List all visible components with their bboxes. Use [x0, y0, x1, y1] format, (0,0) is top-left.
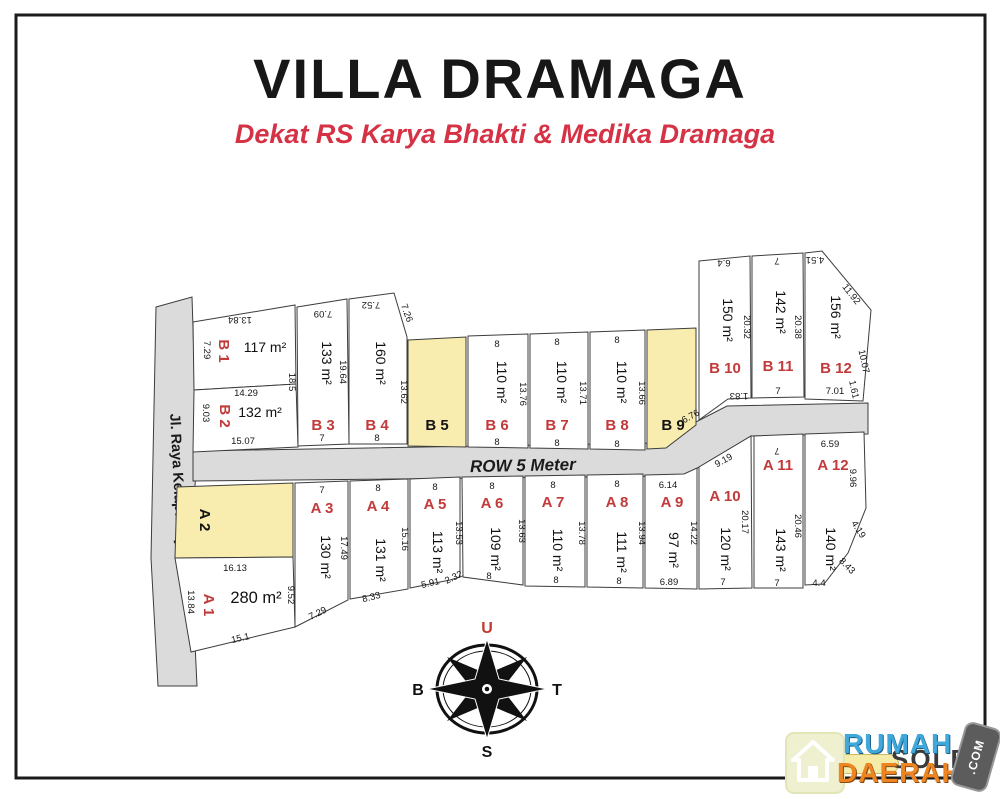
- site-logo: SOLD RUMAH DAERAH .COM: [781, 720, 996, 798]
- plot-b4-area: 160 m²: [373, 341, 389, 385]
- dim-b10-right: 20.32: [741, 315, 752, 339]
- dim-b1-left: 7.29: [201, 341, 212, 360]
- plot-b11-label: B 11: [763, 358, 794, 375]
- dim-a11-right: 20.46: [792, 514, 803, 538]
- dim-a12-right: 9.96: [847, 469, 858, 488]
- compass-north-label: U: [481, 620, 493, 637]
- plot-a9-label: A 9: [661, 494, 684, 511]
- dim-b2-left: 9.03: [200, 404, 211, 423]
- dim-b6-right: 13.76: [517, 382, 528, 406]
- dim-a11-bottom: 7: [774, 578, 779, 589]
- plot-a8-area: 111 m²: [614, 531, 630, 573]
- dim-b7-top: 8: [554, 337, 559, 348]
- plot-a4-label: A 4: [367, 498, 390, 515]
- dim-b3-top: 7.09: [314, 308, 333, 319]
- plot-b1-label: B 1: [215, 339, 232, 362]
- dim-b4-top: 7.52: [362, 299, 381, 310]
- dim-a6-bottom: 8: [486, 571, 491, 582]
- dim-b10-top: 6.4: [717, 257, 730, 268]
- dim-a9-top: 6.14: [659, 480, 678, 491]
- dim-a11-top: 7: [774, 445, 779, 456]
- dim-a7-right: 13.78: [576, 521, 587, 545]
- logo-com-label: .COM: [964, 738, 987, 776]
- logo-name-bottom: DAERAH: [837, 757, 963, 789]
- plot-b6-area: 110 m²: [494, 361, 510, 404]
- dim-a8-right: 13.94: [636, 521, 647, 545]
- dim-a1-left: 13.84: [185, 590, 196, 614]
- dim-b3-right: 19.64: [337, 360, 348, 384]
- plot-a7-area: 110 m²: [550, 529, 566, 572]
- compass-east-label: T: [552, 682, 562, 699]
- house-icon: [785, 732, 845, 794]
- dim-a9-bottom: 6.89: [660, 577, 679, 588]
- dim-a9-right: 14.22: [688, 521, 699, 545]
- plot-b8-label: B 8: [605, 417, 628, 434]
- plot-b11-area: 142 m²: [773, 290, 789, 334]
- plot-a5-area: 113 m²: [430, 531, 446, 574]
- dim-b7-right: 13.71: [577, 381, 588, 405]
- logo-name-top: RUMAH: [843, 728, 952, 760]
- page-title: VILLA DRAMAGA: [253, 47, 747, 110]
- plot-a4-area: 131 m²: [373, 538, 389, 582]
- dim-a3-top: 7: [319, 485, 324, 496]
- dim-b8-top: 8: [614, 335, 619, 346]
- plot-b7-label: B 7: [545, 417, 568, 434]
- dim-b11-top: 7: [774, 255, 779, 266]
- dim-a8-bottom: 8: [616, 576, 621, 587]
- plot-a10-label: A 10: [709, 488, 740, 505]
- plot-b3-area: 133 m²: [319, 341, 335, 385]
- dim-b8-bottom: 8: [614, 439, 619, 450]
- site-plan-canvas: VILLA DRAMAGA Dekat RS Karya Bhakti & Me…: [0, 0, 1000, 799]
- plot-b1-area: 117 m²: [244, 339, 287, 355]
- dim-a3-right: 17.49: [338, 536, 349, 560]
- dim-b1-bottom: 14.29: [234, 388, 258, 399]
- plot-a3-area: 130 m²: [318, 535, 334, 579]
- plot-a12-area: 140 m²: [823, 527, 839, 571]
- dim-b1-top: 13.84: [228, 314, 252, 325]
- dim-b6-bottom: 8: [494, 437, 499, 448]
- plot-a10-area: 120 m²: [718, 527, 734, 571]
- dim-b11-right: 20.38: [792, 315, 803, 339]
- plot-a9-area: 97 m²: [666, 532, 682, 568]
- plot-a12-label: A 12: [817, 457, 848, 474]
- plot-b12-area: 156 m²: [828, 295, 844, 339]
- dim-a12-bottom: 4.4: [812, 578, 825, 589]
- dim-a6-right: 13.63: [516, 519, 527, 543]
- road-label: ROW 5 Meter: [470, 455, 578, 476]
- plot-a11-area: 143 m²: [773, 528, 789, 572]
- plot-b12-label: B 12: [820, 360, 852, 377]
- plot-a6-area: 109 m²: [488, 527, 504, 571]
- plot-b7-area: 110 m²: [554, 361, 570, 404]
- plot-b4-label: B 4: [365, 417, 389, 434]
- dim-b1-right: 18.5: [286, 373, 297, 392]
- plot-b3-label: B 3: [311, 417, 334, 434]
- dim-b6-top: 8: [494, 339, 499, 350]
- plot-a6-label: A 6: [481, 495, 504, 512]
- dim-a6-top: 8: [489, 481, 494, 492]
- page-subtitle: Dekat RS Karya Bhakti & Medika Dramaga: [235, 119, 775, 149]
- dim-b11-bottom: 7: [775, 386, 780, 397]
- dim-b12-top: 4.51: [806, 254, 825, 265]
- dim-a1-top: 16.13: [223, 563, 247, 574]
- dim-a12-top: 6.59: [821, 439, 840, 450]
- plot-a2: [175, 483, 293, 558]
- dim-b10-bottom: 1.83: [730, 390, 749, 401]
- plot-a1-label: A 1: [200, 594, 217, 617]
- dim-a5-right: 13.53: [453, 521, 464, 545]
- dim-b12-bottom: 7.01: [826, 386, 845, 397]
- dim-b4-right: 13.62: [398, 380, 409, 404]
- dim-b4-bottom: 8: [374, 433, 379, 444]
- dim-b7-bottom: 8: [554, 438, 559, 449]
- dim-a10-right: 20.17: [739, 510, 750, 534]
- dim-a7-bottom: 8: [553, 575, 558, 586]
- plot-a5-label: A 5: [424, 496, 447, 513]
- dim-b8-right: 13.66: [636, 381, 647, 405]
- plot-b10-label: B 10: [709, 360, 741, 377]
- dim-a10-bottom: 7: [720, 577, 725, 588]
- plot-a11-label: A 11: [763, 457, 793, 474]
- plot-b8-area: 110 m²: [614, 361, 630, 404]
- plot-b2-label: B 2: [216, 404, 233, 427]
- plot-a7-label: A 7: [542, 494, 565, 511]
- site-plan-flyer: VILLA DRAMAGA Dekat RS Karya Bhakti & Me…: [0, 0, 1000, 799]
- compass-south-label: S: [482, 744, 493, 761]
- dim-a5-top: 8: [432, 482, 437, 493]
- plot-b10-area: 150 m²: [720, 298, 736, 342]
- compass-west-label: B: [412, 682, 424, 699]
- plot-a2-label: A 2: [196, 509, 213, 532]
- dim-b3-bottom: 7: [319, 433, 324, 444]
- plot-b6-label: B 6: [485, 417, 508, 434]
- dim-a4-top: 8: [375, 483, 380, 494]
- plot-a1-area: 280 m²: [230, 589, 282, 607]
- logo-com-badge: .COM: [949, 720, 1000, 794]
- plot-a8-label: A 8: [606, 494, 629, 511]
- plot-a3-label: A 3: [311, 500, 334, 517]
- dim-a4-right: 15.16: [399, 527, 410, 551]
- dim-a1-right: 9.52: [285, 586, 296, 605]
- compass-rose: U T S B: [412, 620, 562, 761]
- dim-a8-top: 8: [614, 479, 619, 490]
- plot-b2-area: 132 m²: [238, 404, 282, 420]
- dim-b2-bottom: 15.07: [231, 436, 255, 447]
- dim-a7-top: 8: [550, 480, 555, 491]
- plot-b5-label: B 5: [425, 417, 448, 434]
